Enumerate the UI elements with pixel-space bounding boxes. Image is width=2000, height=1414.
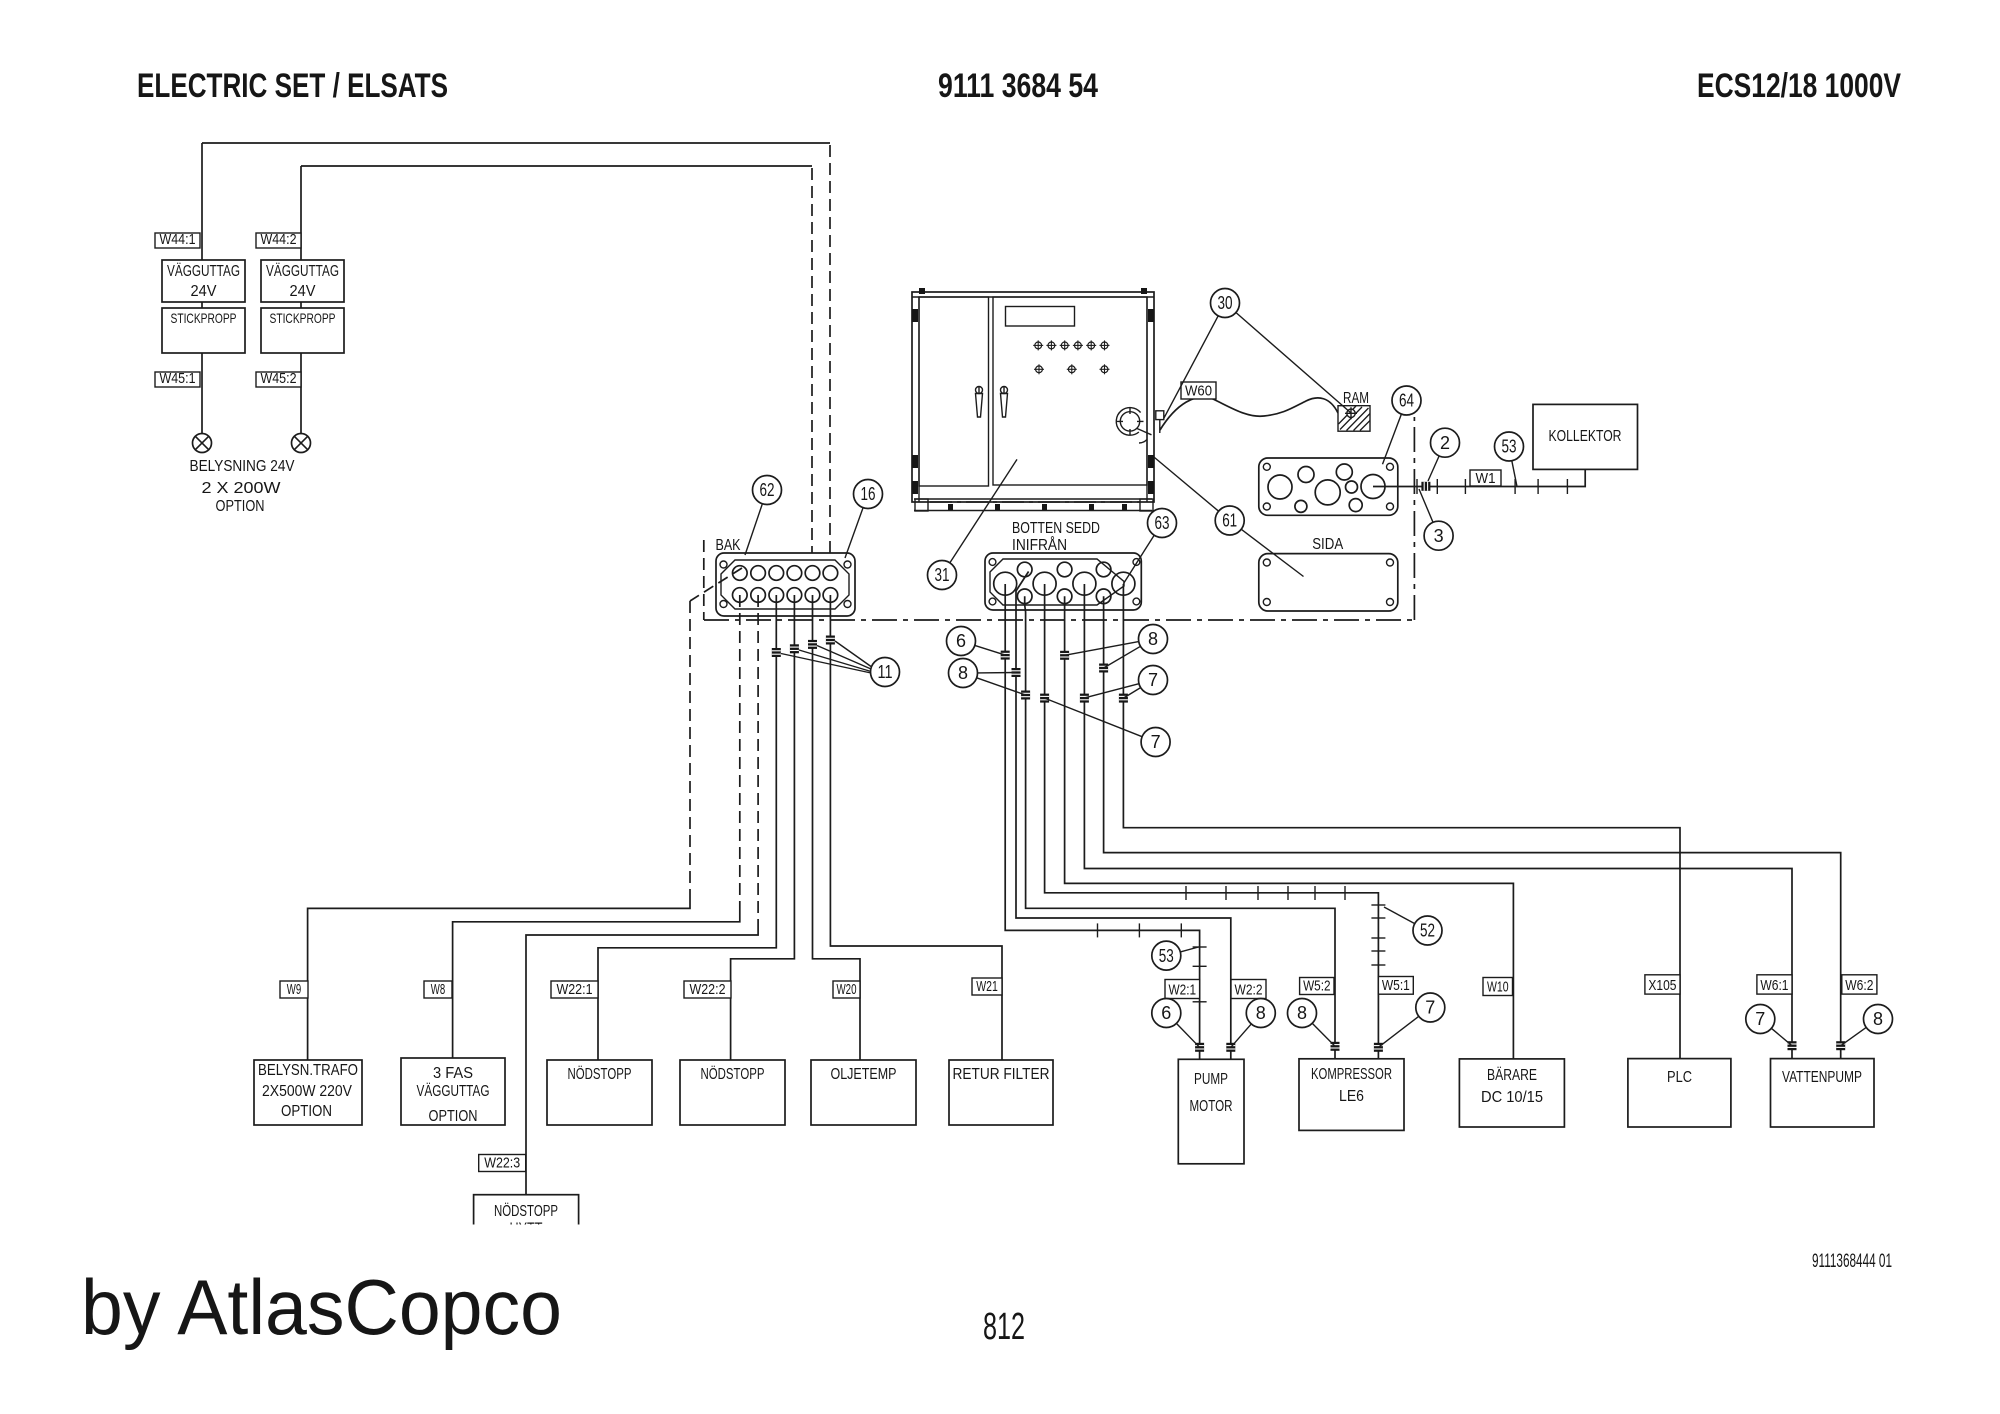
svg-text:VÄGGUTTAG: VÄGGUTTAG: [417, 1082, 490, 1100]
svg-text:2: 2: [1440, 433, 1450, 453]
svg-text:812: 812: [983, 1306, 1025, 1348]
svg-text:53: 53: [1502, 437, 1517, 457]
svg-text:7: 7: [1425, 998, 1435, 1018]
svg-text:W9: W9: [287, 981, 301, 998]
svg-text:W45:1: W45:1: [160, 370, 196, 387]
svg-text:BELYSNING 24V: BELYSNING 24V: [190, 458, 295, 475]
svg-text:7: 7: [1151, 732, 1161, 752]
svg-text:9111 3684 54: 9111 3684 54: [938, 67, 1098, 105]
svg-text:30: 30: [1218, 293, 1233, 313]
svg-text:3: 3: [1434, 526, 1444, 546]
svg-text:2X500W 220V: 2X500W 220V: [262, 1083, 352, 1100]
svg-text:W44:2: W44:2: [261, 231, 297, 248]
svg-text:X105: X105: [1648, 977, 1676, 994]
svg-text:9111368444 01: 9111368444 01: [1812, 1251, 1892, 1272]
svg-text:2 X 200W: 2 X 200W: [202, 480, 282, 497]
svg-text:NÖDSTOPP: NÖDSTOPP: [494, 1202, 558, 1220]
svg-text:W2:1: W2:1: [1169, 982, 1197, 999]
svg-text:RETUR FILTER: RETUR FILTER: [953, 1066, 1050, 1083]
svg-text:W20: W20: [837, 981, 857, 998]
svg-text:6: 6: [956, 631, 966, 651]
svg-text:64: 64: [1399, 391, 1414, 411]
svg-text:VÄGGUTTAG: VÄGGUTTAG: [266, 262, 339, 280]
svg-text:8: 8: [958, 663, 968, 683]
svg-text:W5:2: W5:2: [1303, 978, 1330, 995]
svg-text:KOLLEKTOR: KOLLEKTOR: [1549, 428, 1622, 445]
svg-text:MOTOR: MOTOR: [1190, 1098, 1233, 1115]
svg-text:8: 8: [1148, 629, 1158, 649]
svg-text:W10: W10: [1487, 979, 1509, 996]
svg-text:PUMP: PUMP: [1194, 1071, 1228, 1088]
svg-text:63: 63: [1155, 513, 1170, 533]
svg-text:NÖDSTOPP: NÖDSTOPP: [701, 1065, 765, 1083]
svg-text:OLJETEMP: OLJETEMP: [831, 1066, 897, 1083]
svg-text:11: 11: [878, 662, 893, 682]
svg-text:VATTENPUMP: VATTENPUMP: [1782, 1069, 1862, 1086]
svg-text:DC 10/15: DC 10/15: [1481, 1089, 1543, 1106]
svg-text:BOTTEN SEDD: BOTTEN SEDD: [1012, 520, 1100, 537]
svg-text:8: 8: [1297, 1003, 1307, 1023]
svg-text:W8: W8: [431, 981, 445, 998]
svg-text:16: 16: [861, 484, 876, 504]
svg-text:W2:2: W2:2: [1235, 982, 1263, 999]
svg-text:61: 61: [1222, 511, 1237, 531]
svg-text:53: 53: [1159, 946, 1174, 966]
svg-text:24V: 24V: [290, 283, 316, 300]
svg-text:W22:2: W22:2: [690, 981, 726, 998]
svg-text:W1: W1: [1476, 470, 1496, 487]
svg-text:52: 52: [1420, 921, 1435, 941]
svg-text:ELECTRIC SET / ELSATS: ELECTRIC SET / ELSATS: [137, 67, 448, 105]
svg-text:W6:1: W6:1: [1760, 977, 1788, 994]
svg-text:ECS12/18 1000V: ECS12/18 1000V: [1697, 67, 1901, 105]
svg-text:LE6: LE6: [1339, 1088, 1364, 1105]
svg-text:BAK: BAK: [716, 537, 741, 554]
svg-text:8: 8: [1256, 1003, 1266, 1023]
svg-text:NÖDSTOPP: NÖDSTOPP: [568, 1065, 632, 1083]
svg-text:W6:2: W6:2: [1845, 977, 1873, 994]
svg-text:7: 7: [1148, 670, 1158, 690]
svg-text:by AtlasCopco: by AtlasCopco: [81, 1263, 562, 1351]
svg-text:OPTION: OPTION: [281, 1103, 332, 1120]
svg-text:W60: W60: [1185, 383, 1212, 400]
svg-text:INIFRÅN: INIFRÅN: [1012, 535, 1067, 554]
svg-text:VÄGGUTTAG: VÄGGUTTAG: [167, 262, 240, 280]
svg-text:7: 7: [1755, 1009, 1765, 1029]
svg-text:STICKPROPP: STICKPROPP: [171, 310, 237, 326]
svg-text:24V: 24V: [191, 283, 217, 300]
svg-text:62: 62: [760, 480, 775, 500]
svg-text:W5:1: W5:1: [1382, 977, 1410, 994]
svg-text:BELYSN.TRAFO: BELYSN.TRAFO: [258, 1062, 358, 1079]
svg-text:W21: W21: [976, 978, 998, 995]
svg-text:PLC: PLC: [1667, 1069, 1692, 1086]
svg-text:W22:3: W22:3: [484, 1155, 520, 1172]
svg-text:6: 6: [1161, 1003, 1171, 1023]
svg-text:8: 8: [1873, 1009, 1883, 1029]
svg-text:W45:2: W45:2: [261, 370, 297, 387]
svg-text:SIDA: SIDA: [1312, 536, 1343, 553]
svg-text:STICKPROPP: STICKPROPP: [270, 310, 336, 326]
svg-text:W44:1: W44:1: [160, 231, 196, 248]
svg-text:BÄRARE: BÄRARE: [1487, 1066, 1537, 1084]
svg-text:RAM: RAM: [1343, 390, 1369, 407]
svg-text:KOMPRESSOR: KOMPRESSOR: [1311, 1066, 1392, 1083]
svg-text:OPTION: OPTION: [429, 1108, 478, 1125]
svg-text:3 FAS: 3 FAS: [433, 1065, 473, 1082]
svg-text:OPTION: OPTION: [216, 498, 265, 515]
svg-text:W22:1: W22:1: [557, 981, 593, 998]
svg-text:31: 31: [935, 565, 950, 585]
